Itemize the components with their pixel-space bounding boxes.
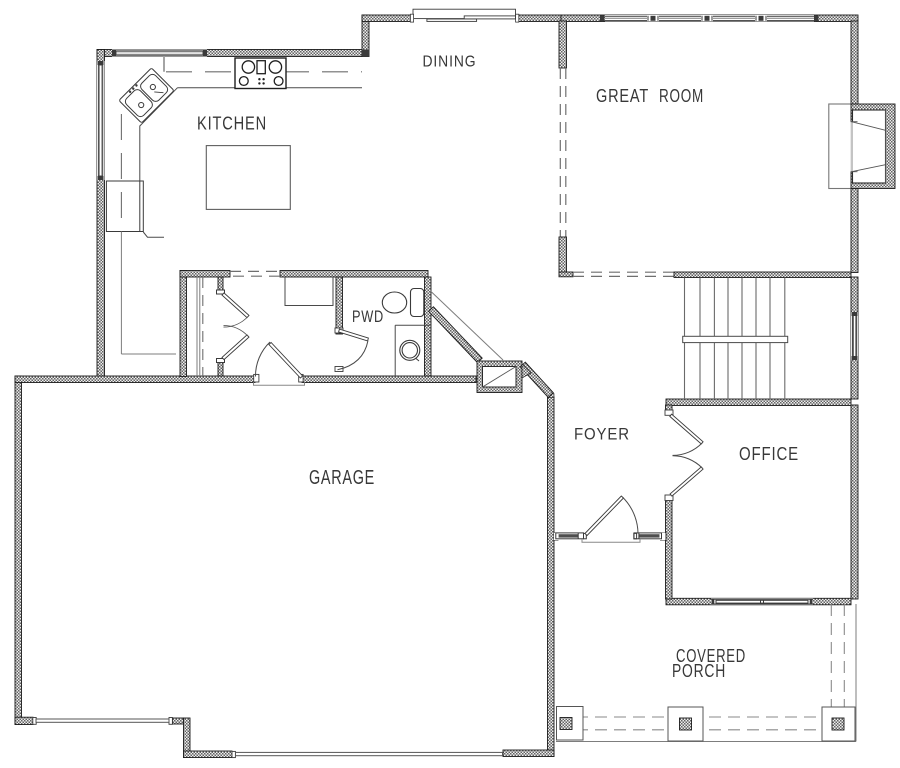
svg-text:ROOM: ROOM bbox=[659, 86, 704, 106]
svg-text:DINING: DINING bbox=[423, 54, 477, 71]
svg-text:PWD: PWD bbox=[352, 307, 384, 326]
svg-text:GARAGE: GARAGE bbox=[309, 467, 375, 489]
svg-text:FOYER: FOYER bbox=[574, 425, 630, 444]
svg-text:GREAT: GREAT bbox=[596, 86, 649, 106]
svg-text:OFFICE: OFFICE bbox=[739, 444, 799, 464]
svg-text:PORCH: PORCH bbox=[672, 661, 726, 681]
svg-text:KITCHEN: KITCHEN bbox=[197, 114, 267, 134]
